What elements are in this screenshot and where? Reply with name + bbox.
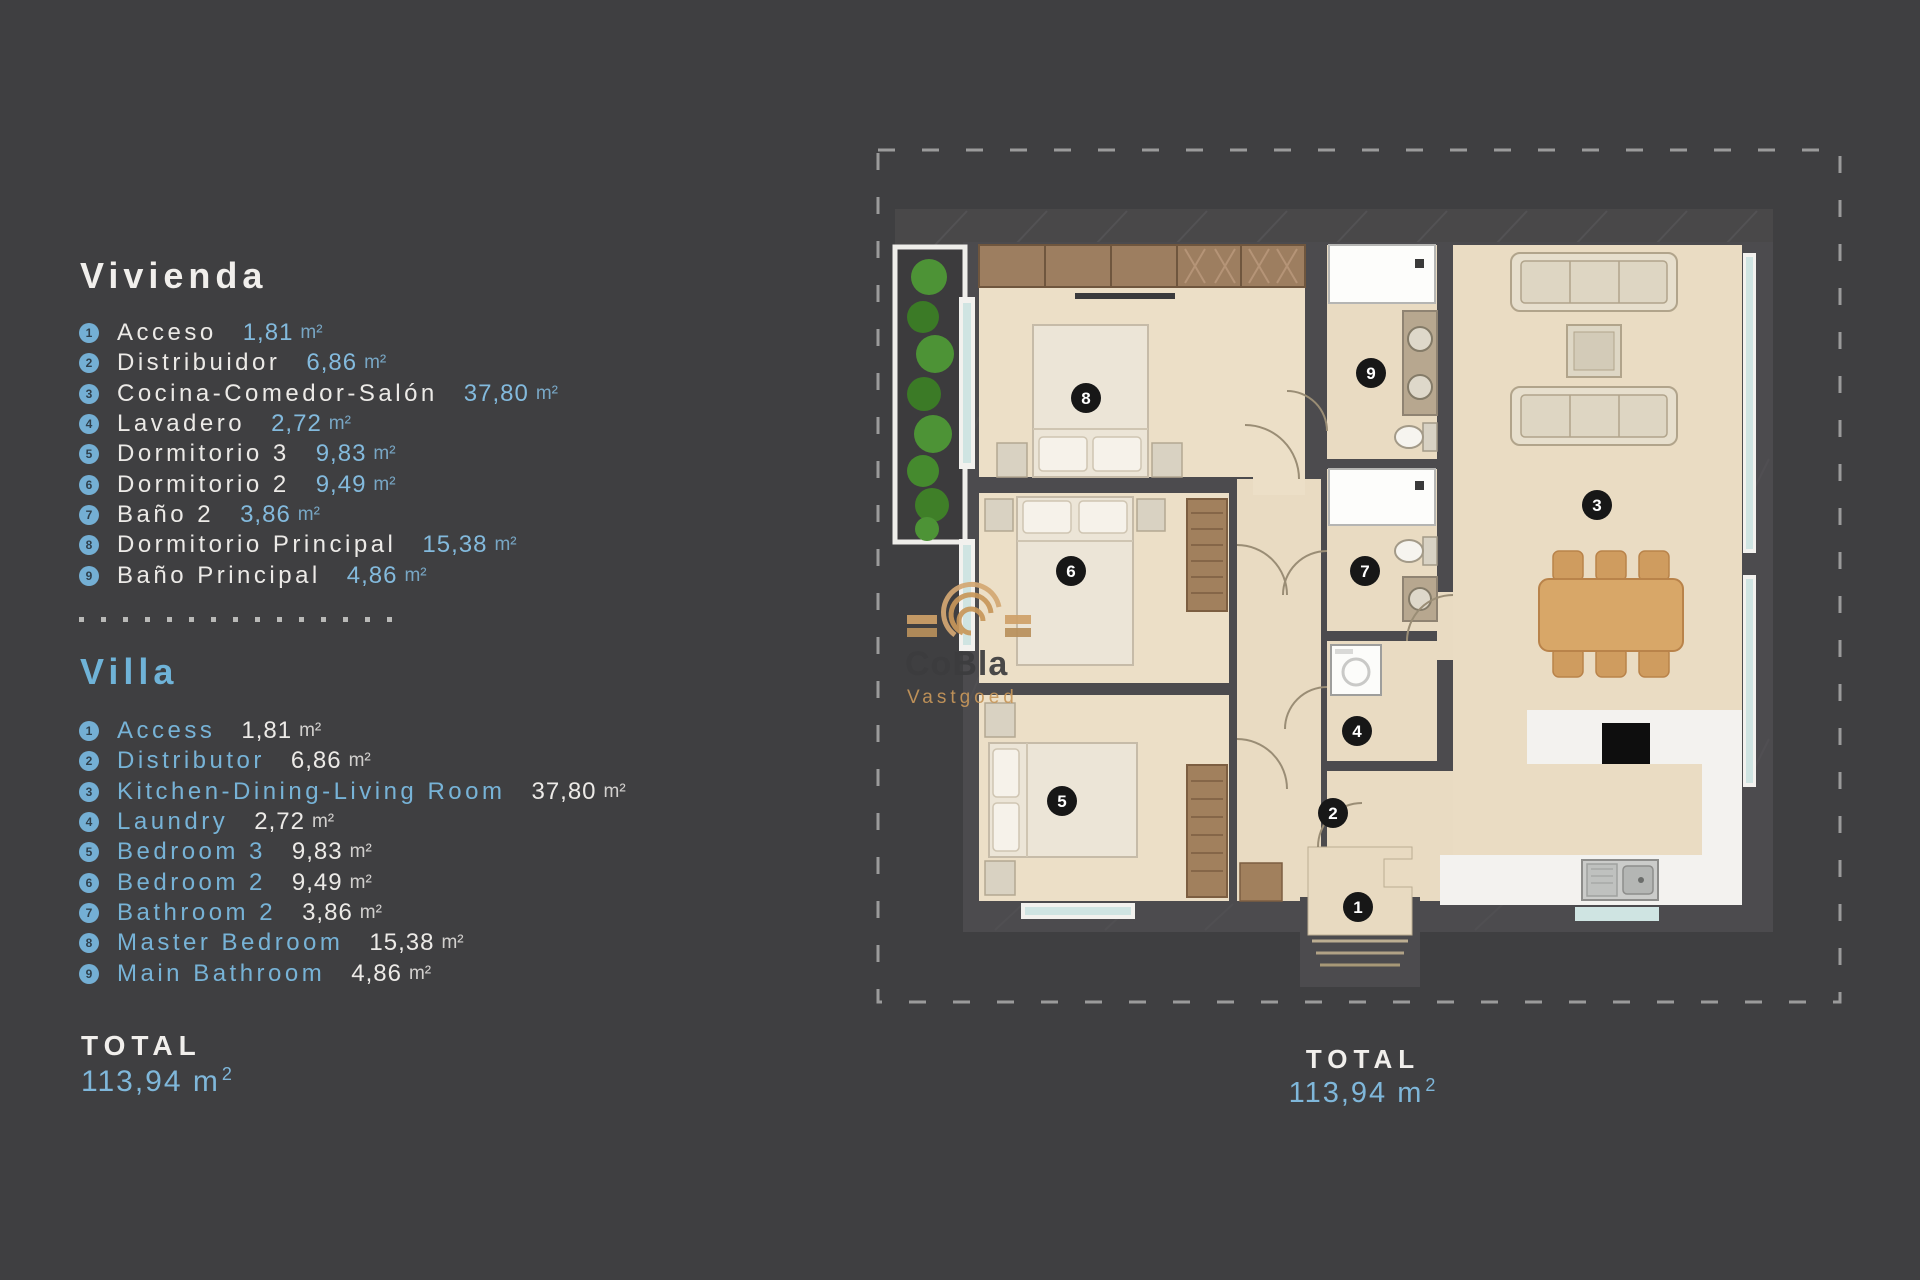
- item-number-badge: 2: [79, 751, 99, 771]
- legend-title-en: Villa: [80, 654, 178, 690]
- area-unit: m²: [364, 352, 386, 374]
- watermark-sub: Vastgoed: [907, 687, 1018, 708]
- room-area: 2,72: [271, 410, 322, 438]
- area-unit: m²: [300, 322, 322, 344]
- doorway-living: [1437, 592, 1453, 660]
- legend-item: 4Lavadero2,72m²: [79, 409, 558, 439]
- closet-icon: [1187, 765, 1227, 897]
- room-area: 2,72: [254, 808, 305, 836]
- room-area: 6,86: [306, 349, 357, 377]
- room-name: Master Bedroom: [117, 929, 343, 957]
- room-marker: 3: [1582, 490, 1612, 520]
- room-marker: 2: [1318, 798, 1348, 828]
- room-name: Baño Principal: [117, 562, 321, 590]
- svg-text:7: 7: [1360, 562, 1369, 581]
- total-value-number: 113,94 m: [1289, 1077, 1424, 1109]
- room-name: Dormitorio Principal: [117, 531, 396, 559]
- legend-title-es: Vivienda: [80, 258, 267, 294]
- area-unit: m²: [350, 872, 372, 894]
- item-number-badge: 3: [79, 782, 99, 802]
- room-name: Main Bathroom: [117, 960, 325, 988]
- legend-item: 9Baño Principal4,86m²: [79, 560, 558, 590]
- legend-list-es: 1Acceso1,81m² 2Distribuidor6,86m² 3Cocin…: [79, 318, 558, 591]
- svg-text:4: 4: [1352, 722, 1362, 741]
- floorplan-brochure: { "colors": { "background": "#3f3f41", "…: [0, 0, 1920, 1280]
- svg-text:1: 1: [1353, 898, 1362, 917]
- room-area: 1,81: [241, 717, 292, 745]
- legend-item: 1Access1,81m²: [79, 716, 626, 746]
- window-strip: [1575, 907, 1659, 921]
- room-name: Dormitorio 2: [117, 471, 290, 499]
- cooktop-icon: [1602, 723, 1650, 764]
- legend-item: 3Cocina-Comedor-Salón37,80m²: [79, 379, 558, 409]
- total-label: TOTAL: [81, 1032, 234, 1060]
- area-unit: m²: [441, 932, 463, 954]
- dining-table-icon: [1539, 551, 1683, 677]
- item-number-badge: 7: [79, 505, 99, 525]
- room-area: 9,49: [316, 471, 367, 499]
- item-number-badge: 9: [79, 566, 99, 586]
- area-unit: m²: [360, 902, 382, 924]
- closet-icon: [1187, 499, 1227, 611]
- svg-text:6: 6: [1066, 562, 1075, 581]
- legend-item: 7Bathroom 23,86m²: [79, 898, 626, 928]
- separator-dots: [79, 617, 399, 622]
- total-left: TOTAL 113,94 m2: [81, 1032, 234, 1097]
- total-value: 113,94 m2: [81, 1067, 234, 1097]
- coffee-table-icon: [1567, 325, 1621, 377]
- total-value-sup: 2: [1425, 1075, 1437, 1095]
- legend-item: 9Main Bathroom4,86m²: [79, 958, 626, 988]
- legend-item: 5Dormitorio 39,83m²: [79, 439, 558, 469]
- room-area: 9,83: [316, 440, 367, 468]
- item-number-badge: 4: [79, 414, 99, 434]
- area-unit: m²: [312, 811, 334, 833]
- legend-item: 4Laundry2,72m²: [79, 807, 626, 837]
- legend-item: 5Bedroom 39,83m²: [79, 837, 626, 867]
- room-name: Dormitorio 3: [117, 440, 290, 468]
- toilet-icon: [1395, 423, 1437, 451]
- room-marker: 5: [1047, 786, 1077, 816]
- legend-item: 3Kitchen-Dining-Living Room37,80m²: [79, 777, 626, 807]
- room-area: 1,81: [243, 319, 294, 347]
- area-unit: m²: [536, 383, 558, 405]
- item-number-badge: 1: [79, 323, 99, 343]
- room-area: 37,80: [464, 380, 529, 408]
- total-value-sup: 2: [222, 1064, 234, 1084]
- room-area: 4,86: [347, 562, 398, 590]
- area-unit: m²: [409, 963, 431, 985]
- corridor-distributor: [1237, 479, 1321, 901]
- room-name: Baño 2: [117, 501, 214, 529]
- item-number-badge: 1: [79, 721, 99, 741]
- legend-item: 1Acceso1,81m²: [79, 318, 558, 348]
- room-area: 6,86: [291, 747, 342, 775]
- total-value-number: 113,94 m: [81, 1065, 220, 1098]
- double-sink-vanity-icon: [1403, 311, 1437, 415]
- room-name: Cocina-Comedor-Salón: [117, 380, 438, 408]
- item-number-badge: 9: [79, 964, 99, 984]
- item-number-badge: 7: [79, 903, 99, 923]
- svg-text:2: 2: [1328, 804, 1337, 823]
- legend-item: 2Distributor6,86m²: [79, 746, 626, 776]
- room-name: Bedroom 3: [117, 838, 266, 866]
- room-area: 37,80: [531, 778, 596, 806]
- washing-machine-icon: [1331, 645, 1381, 695]
- legend-item: 7Baño 23,86m²: [79, 500, 558, 530]
- garden: [895, 247, 965, 542]
- area-unit: m²: [404, 565, 426, 587]
- item-number-badge: 4: [79, 812, 99, 832]
- item-number-badge: 5: [79, 444, 99, 464]
- item-number-badge: 8: [79, 535, 99, 555]
- floor-plan-svg: CoBla Vastgoed 1 2 3 4 5 6 7 8 9: [875, 147, 1843, 1005]
- room-marker: 6: [1056, 556, 1086, 586]
- room-name: Lavadero: [117, 410, 245, 438]
- room-name: Bathroom 2: [117, 899, 276, 927]
- room-area: 15,38: [369, 929, 434, 957]
- area-unit: m²: [350, 841, 372, 863]
- total-plan: TOTAL 113,94 m2: [879, 1046, 1847, 1108]
- roof-band: [895, 209, 1773, 247]
- room-area: 3,86: [240, 501, 291, 529]
- item-number-badge: 6: [79, 873, 99, 893]
- legend-item: 6Dormitorio 29,49m²: [79, 469, 558, 499]
- area-unit: m²: [329, 413, 351, 435]
- legend-item: 8Master Bedroom15,38m²: [79, 928, 626, 958]
- shower-icon: [1329, 469, 1435, 525]
- area-unit: m²: [373, 443, 395, 465]
- area-unit: m²: [494, 534, 516, 556]
- legend-item: 8Dormitorio Principal15,38m²: [79, 530, 558, 560]
- sofa-icon: [1511, 387, 1677, 445]
- area-unit: m²: [373, 474, 395, 496]
- floor-plan: CoBla Vastgoed 1 2 3 4 5 6 7 8 9: [875, 147, 1843, 1005]
- sink-icon: [1582, 860, 1658, 900]
- doorway-master: [1253, 477, 1305, 495]
- room-name: Kitchen-Dining-Living Room: [117, 778, 505, 806]
- room-marker: 7: [1350, 556, 1380, 586]
- room-area: 9,49: [292, 869, 343, 897]
- legend-item: 2Distribuidor6,86m²: [79, 348, 558, 378]
- item-number-badge: 2: [79, 353, 99, 373]
- item-number-badge: 5: [79, 842, 99, 862]
- item-number-badge: 6: [79, 475, 99, 495]
- room-area: 4,86: [351, 960, 402, 988]
- room-area: 3,86: [302, 899, 353, 927]
- room-name: Laundry: [117, 808, 228, 836]
- area-unit: m²: [299, 720, 321, 742]
- sofa-icon: [1511, 253, 1677, 311]
- watermark-brand: CoBla: [905, 645, 1008, 683]
- room-area: 15,38: [422, 531, 487, 559]
- room-area: 9,83: [292, 838, 343, 866]
- room-name: Access: [117, 717, 215, 745]
- legend-list-en: 1Access1,81m² 2Distributor6,86m² 3Kitche…: [79, 716, 626, 989]
- room-marker: 1: [1343, 892, 1373, 922]
- room-marker: 9: [1356, 358, 1386, 388]
- legend-item: 6Bedroom 29,49m²: [79, 867, 626, 897]
- room-name: Distribuidor: [117, 349, 280, 377]
- shower-icon: [1329, 245, 1435, 303]
- total-label: TOTAL: [879, 1046, 1847, 1072]
- room-name: Bedroom 2: [117, 869, 266, 897]
- svg-text:9: 9: [1366, 364, 1375, 383]
- item-number-badge: 8: [79, 933, 99, 953]
- item-number-badge: 3: [79, 384, 99, 404]
- svg-text:3: 3: [1592, 496, 1601, 515]
- room-name: Distributor: [117, 747, 265, 775]
- area-unit: m²: [349, 750, 371, 772]
- total-value: 113,94 m2: [879, 1079, 1847, 1108]
- area-unit: m²: [604, 781, 626, 803]
- room-name: Acceso: [117, 319, 217, 347]
- room-marker: 8: [1071, 383, 1101, 413]
- svg-text:8: 8: [1081, 389, 1090, 408]
- toilet-icon: [1395, 537, 1437, 565]
- room-marker: 4: [1342, 716, 1372, 746]
- entry-mat: [1240, 863, 1282, 901]
- area-unit: m²: [298, 504, 320, 526]
- svg-text:5: 5: [1057, 792, 1066, 811]
